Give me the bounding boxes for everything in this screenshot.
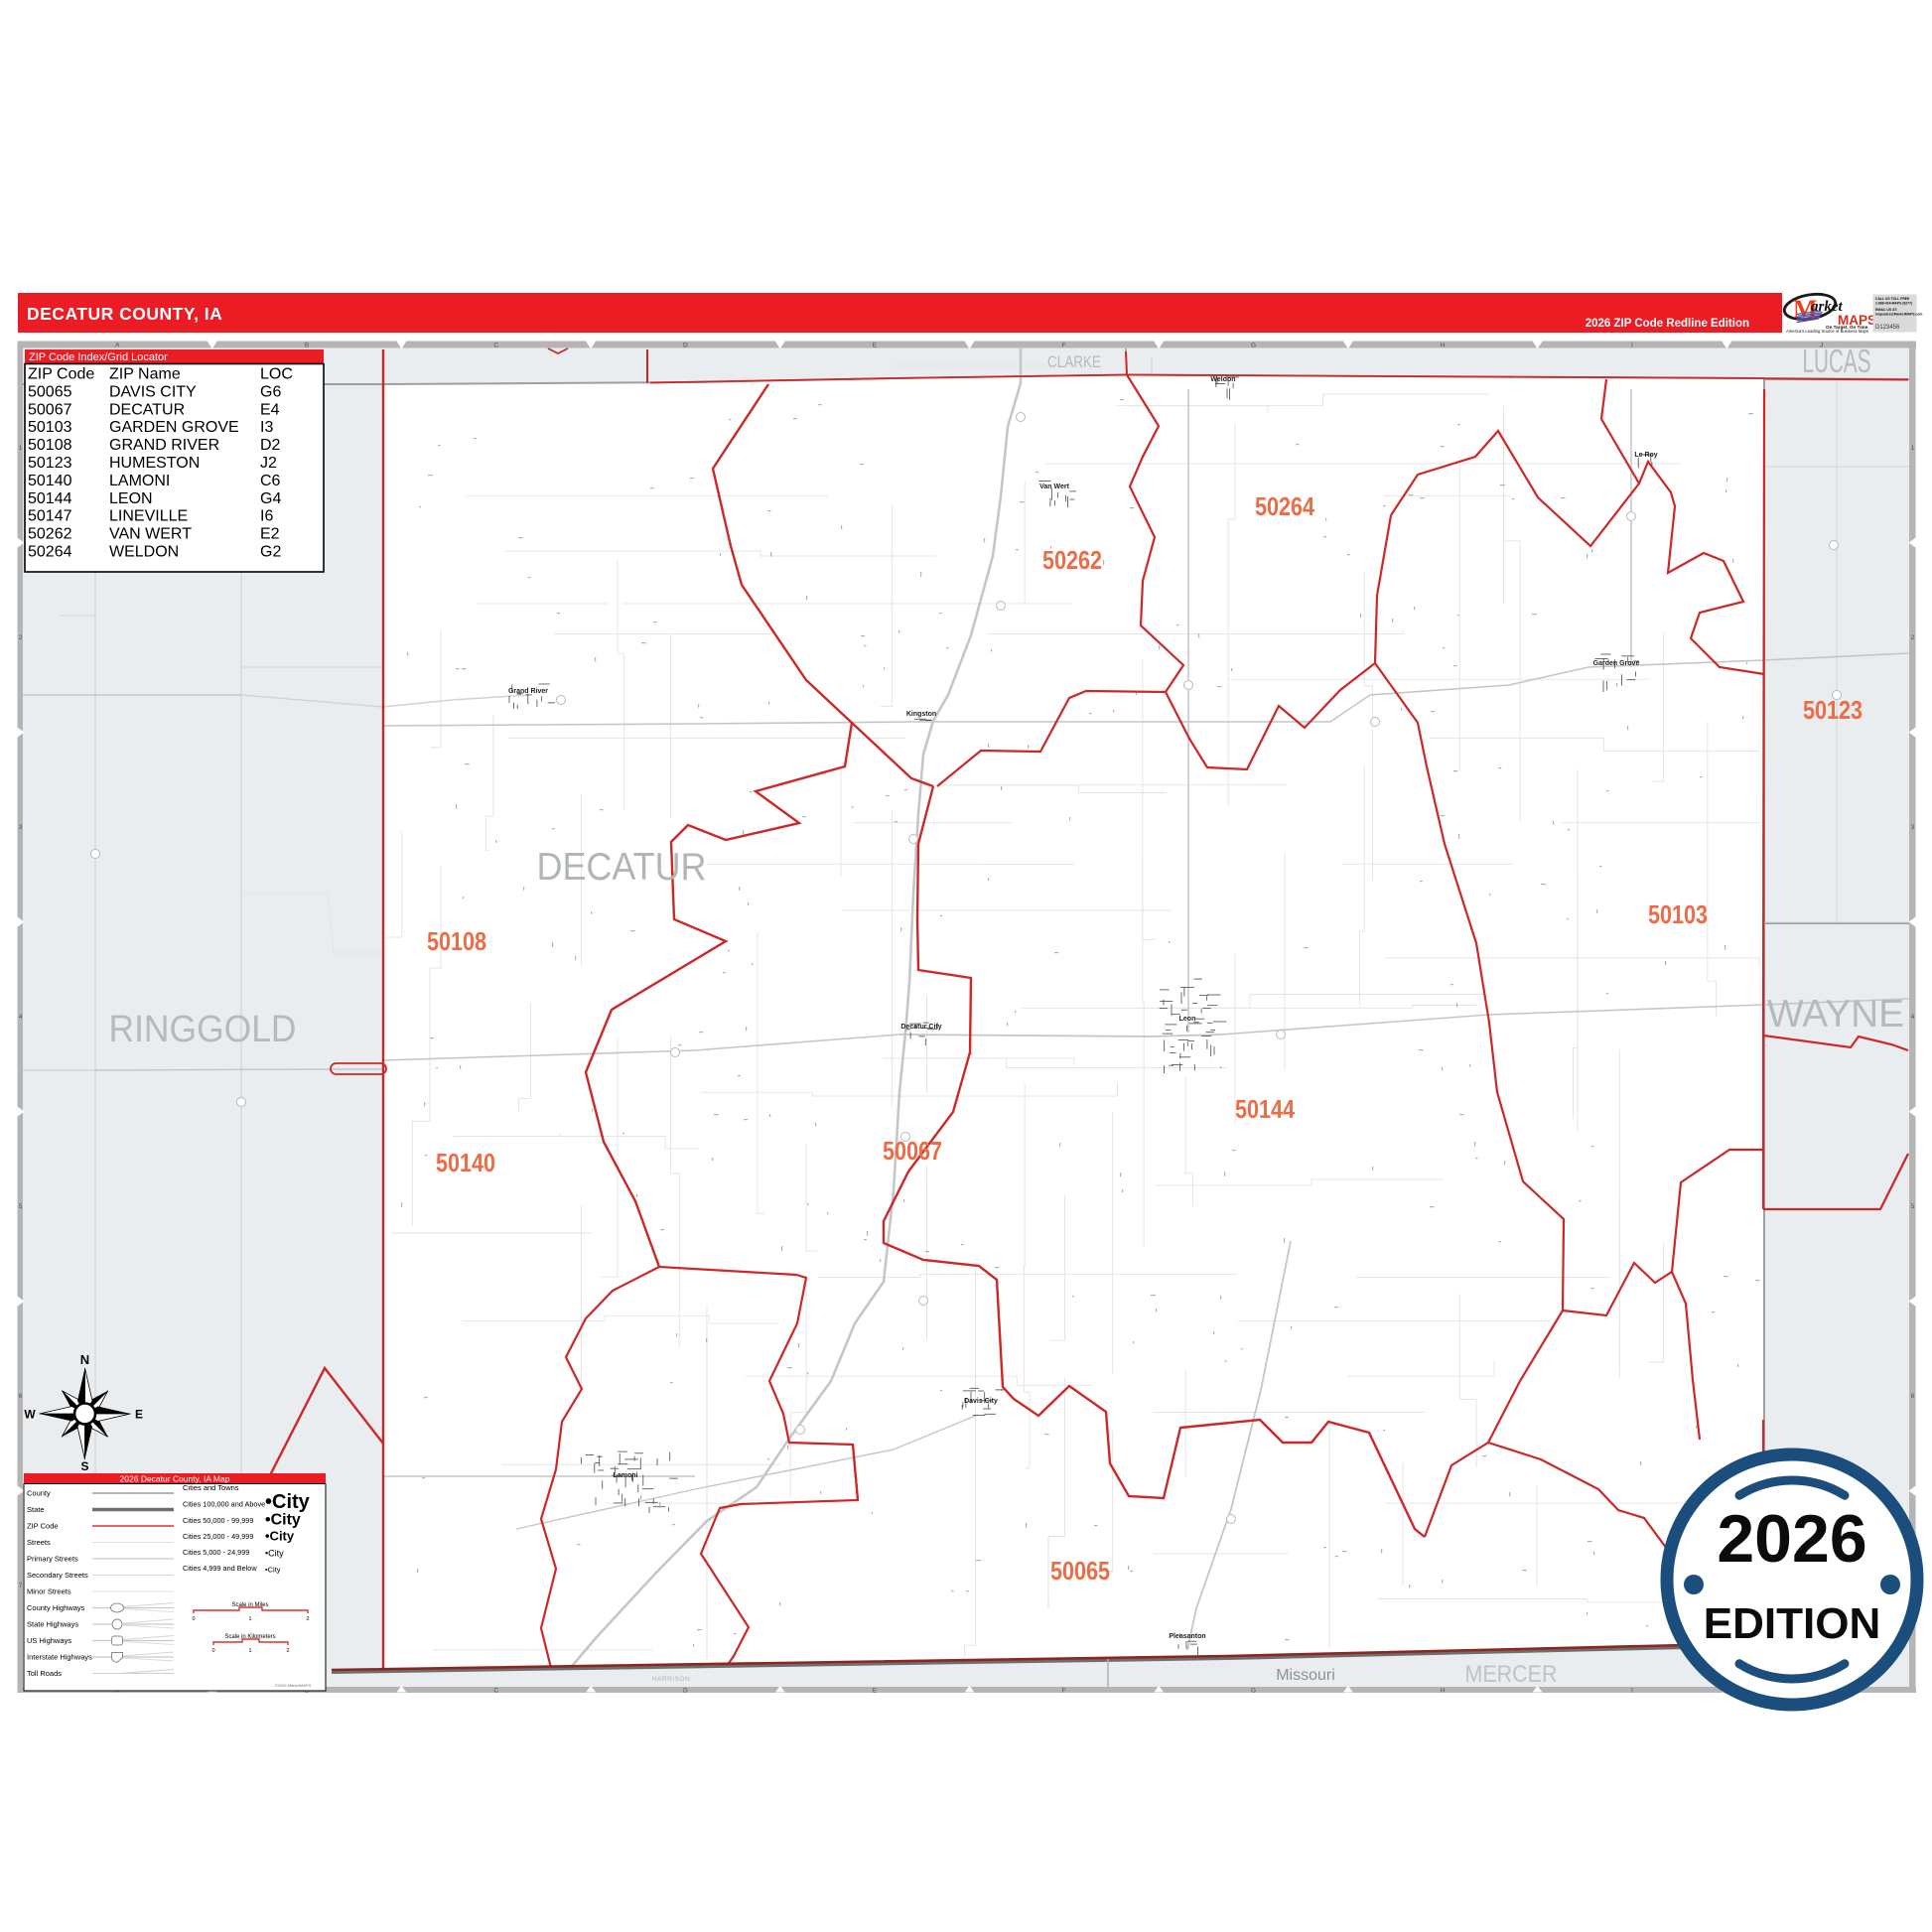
svg-text:E: E (873, 343, 878, 349)
svg-text:•City: •City (265, 1491, 311, 1513)
svg-text:Le Roy: Le Roy (1634, 452, 1657, 459)
svg-text:Leon: Leon (1179, 1016, 1196, 1023)
svg-text:America's Leading Source of Bu: America's Leading Source of Business Map… (1786, 329, 1868, 334)
svg-text:CLARKE: CLARKE (1047, 353, 1101, 371)
svg-text:LINEVILLE: LINEVILLE (109, 508, 188, 525)
svg-text:2026 Decatur County, IA Map: 2026 Decatur County, IA Map (120, 1474, 230, 1484)
svg-text:0: 0 (192, 1616, 195, 1622)
svg-text:Interstate Highways: Interstate Highways (27, 1653, 92, 1662)
svg-text:D2: D2 (260, 437, 281, 454)
svg-text:F: F (1062, 1687, 1066, 1694)
svg-text:F: F (1062, 343, 1066, 349)
svg-text:2: 2 (1911, 634, 1915, 641)
svg-text:E2: E2 (260, 526, 280, 543)
svg-text:C6: C6 (260, 473, 281, 489)
svg-text:ZIP Code Index/Grid Locator: ZIP Code Index/Grid Locator (29, 351, 168, 363)
svg-text:C: C (493, 343, 498, 349)
svg-text:50123: 50123 (1803, 695, 1863, 725)
svg-text:S: S (80, 1459, 88, 1473)
svg-text:1: 1 (19, 445, 23, 452)
svg-text:2026: 2026 (1717, 1501, 1866, 1577)
svg-text:J: J (1820, 343, 1823, 349)
svg-text:6: 6 (19, 1393, 23, 1400)
svg-text:B: B (305, 343, 309, 349)
svg-text:Grand River: Grand River (508, 688, 548, 695)
svg-text:C: C (493, 1687, 498, 1694)
svg-text:•City: •City (265, 1512, 301, 1529)
svg-text:I6: I6 (260, 508, 273, 525)
svg-text:1-888-434-MAPS (6277): 1-888-434-MAPS (6277) (1875, 302, 1912, 306)
svg-text:LAMONI: LAMONI (109, 473, 170, 489)
svg-text:G4: G4 (260, 490, 281, 507)
svg-text:5: 5 (1911, 1203, 1915, 1210)
svg-text:0: 0 (211, 1648, 214, 1654)
svg-text:G6: G6 (260, 383, 281, 400)
svg-text:DECATUR COUNTY, IA: DECATUR COUNTY, IA (27, 304, 222, 324)
svg-text:D: D (683, 1687, 688, 1694)
svg-text:Cities 25,000 - 49,999: Cities 25,000 - 49,999 (183, 1532, 253, 1541)
svg-text:50067: 50067 (28, 401, 72, 418)
svg-text:Weldon: Weldon (1210, 376, 1235, 383)
svg-text:G: G (1251, 1687, 1256, 1694)
svg-text:Pleasanton: Pleasanton (1169, 1633, 1205, 1640)
svg-text:GARDEN GROVE: GARDEN GROVE (109, 419, 239, 436)
svg-text:©2026 MarketMAPS: ©2026 MarketMAPS (275, 1683, 312, 1688)
svg-text:•City: •City (265, 1566, 281, 1575)
svg-text:2026 ZIP Code Redline Edition: 2026 ZIP Code Redline Edition (1586, 318, 1749, 330)
svg-text:HUMESTON: HUMESTON (109, 455, 200, 472)
svg-text:Cities and Towns: Cities and Towns (183, 1483, 239, 1492)
svg-text:5: 5 (19, 1203, 23, 1210)
svg-text:2: 2 (19, 634, 23, 641)
svg-text:LEON: LEON (109, 490, 153, 507)
svg-text:50264: 50264 (1255, 491, 1314, 521)
svg-text:I: I (1631, 343, 1633, 349)
svg-text:50108: 50108 (28, 437, 72, 454)
svg-text:Secondary Streets: Secondary Streets (27, 1571, 88, 1580)
svg-text:E4: E4 (260, 401, 280, 418)
svg-text:DECATUR: DECATUR (109, 401, 185, 418)
svg-text:ZIP Name: ZIP Name (109, 366, 181, 383)
svg-text:Decatur City: Decatur City (900, 1024, 941, 1031)
svg-text:Garden Grove: Garden Grove (1593, 660, 1640, 667)
svg-text:50140: 50140 (28, 473, 72, 489)
svg-text:VAN WERT: VAN WERT (109, 526, 192, 543)
svg-text:50140: 50140 (436, 1148, 495, 1177)
svg-text:•City: •City (265, 1529, 295, 1544)
svg-text:County Highways: County Highways (27, 1603, 85, 1612)
svg-text:State: State (27, 1505, 45, 1514)
svg-text:Kingston: Kingston (906, 711, 936, 718)
svg-text:E: E (135, 1408, 143, 1422)
svg-text:Toll Roads: Toll Roads (27, 1669, 62, 1678)
svg-text:LUCAS: LUCAS (1803, 343, 1871, 379)
svg-text:DECATUR: DECATUR (537, 846, 707, 889)
svg-text:I: I (1631, 1687, 1633, 1694)
svg-text:J2: J2 (260, 455, 277, 472)
svg-text:50262: 50262 (28, 526, 72, 543)
svg-text:EMAIL US AT:: EMAIL US AT: (1875, 308, 1897, 312)
svg-text:Lamoni: Lamoni (614, 1472, 638, 1479)
svg-text:US Highways: US Highways (27, 1636, 71, 1645)
svg-text:W: W (24, 1408, 36, 1422)
svg-text:4: 4 (1911, 1014, 1915, 1021)
svg-text:1: 1 (1911, 445, 1915, 452)
svg-text:Cities 50,000 - 99,999: Cities 50,000 - 99,999 (183, 1516, 253, 1525)
svg-text:50144: 50144 (28, 490, 72, 507)
svg-text:H: H (1441, 1687, 1446, 1694)
svg-text:HARRISON: HARRISON (652, 1676, 690, 1683)
svg-text:mapsales@MarketMAPS.com: mapsales@MarketMAPS.com (1875, 313, 1922, 317)
svg-text:50264: 50264 (28, 544, 72, 561)
svg-text:Van Wert: Van Wert (1039, 483, 1069, 490)
svg-text:WAYNE: WAYNE (1767, 993, 1904, 1035)
svg-text:CALL US TOLL FREE: CALL US TOLL FREE (1875, 297, 1910, 301)
svg-text:50065: 50065 (28, 383, 72, 400)
svg-text:6: 6 (1911, 1393, 1915, 1400)
svg-text:3: 3 (1911, 824, 1915, 831)
svg-text:1: 1 (248, 1648, 251, 1654)
svg-text:50144: 50144 (1235, 1094, 1295, 1124)
svg-text:DAVIS CITY: DAVIS CITY (109, 383, 197, 400)
svg-text:WELDON: WELDON (109, 544, 179, 561)
svg-text:D123456: D123456 (1875, 325, 1900, 331)
svg-text:County: County (27, 1489, 51, 1498)
svg-text:N: N (80, 1352, 89, 1367)
svg-text:3: 3 (19, 824, 23, 831)
svg-text:GRAND RIVER: GRAND RIVER (109, 437, 219, 454)
svg-text:50108: 50108 (427, 926, 486, 956)
svg-text:Streets: Streets (27, 1538, 51, 1547)
svg-text:Davis City: Davis City (964, 1398, 998, 1405)
svg-text:50262: 50262 (1042, 545, 1102, 575)
svg-text:EDITION: EDITION (1704, 1599, 1880, 1648)
svg-text:•City: •City (265, 1549, 284, 1559)
svg-text:H: H (1441, 343, 1446, 349)
svg-text:7: 7 (19, 1583, 23, 1589)
svg-text:G: G (1251, 343, 1256, 349)
svg-text:ZIP Code: ZIP Code (27, 1522, 59, 1531)
svg-text:A: A (115, 343, 120, 349)
svg-text:Minor Streets: Minor Streets (27, 1587, 71, 1596)
svg-text:Missouri: Missouri (1276, 1667, 1335, 1684)
svg-text:E: E (873, 1687, 878, 1694)
svg-text:50103: 50103 (28, 419, 72, 436)
svg-text:2: 2 (286, 1648, 289, 1654)
svg-text:4: 4 (19, 1014, 23, 1021)
svg-text:ZIP Code: ZIP Code (28, 366, 94, 383)
svg-text:50123: 50123 (28, 455, 72, 472)
svg-text:MERCER: MERCER (1465, 1661, 1558, 1688)
svg-text:Primary Streets: Primary Streets (27, 1555, 78, 1564)
svg-text:Cities 5,000 - 24,999: Cities 5,000 - 24,999 (183, 1548, 249, 1557)
svg-text:LOC: LOC (260, 366, 293, 383)
svg-text:I3: I3 (260, 419, 273, 436)
svg-text:1: 1 (248, 1616, 251, 1622)
svg-text:2: 2 (306, 1616, 309, 1622)
svg-text:Cities 4,999 and Below: Cities 4,999 and Below (183, 1564, 257, 1573)
svg-text:D: D (683, 343, 688, 349)
svg-text:G2: G2 (260, 544, 281, 561)
svg-text:50147: 50147 (28, 508, 72, 525)
svg-text:State Highways: State Highways (27, 1620, 78, 1629)
svg-text:Cities 100,000 and Above: Cities 100,000 and Above (183, 1500, 265, 1509)
svg-text:50067: 50067 (883, 1136, 942, 1166)
svg-text:RINGGOLD: RINGGOLD (109, 1009, 297, 1050)
svg-text:50103: 50103 (1648, 899, 1708, 929)
svg-text:50065: 50065 (1050, 1556, 1110, 1586)
